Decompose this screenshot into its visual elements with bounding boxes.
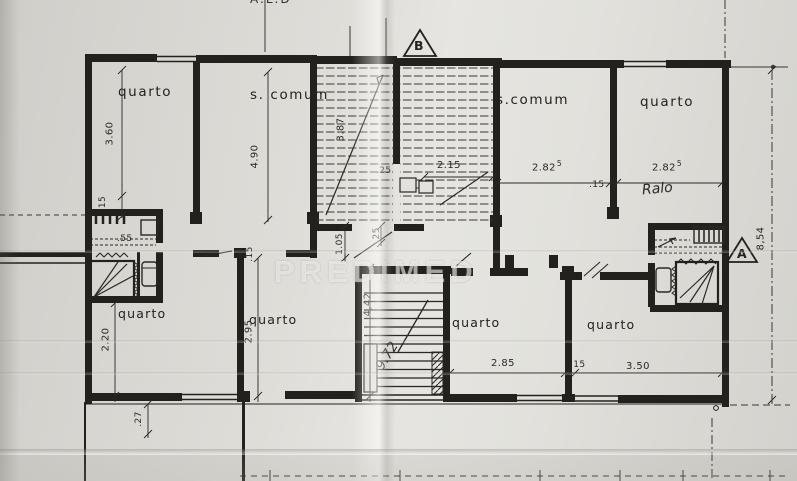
dim-left-room-depth: 3.60 — [104, 122, 115, 146]
top-edge-note: A.L.D — [250, 0, 292, 6]
dim-lower-left-depth: 2.20 — [100, 328, 111, 352]
neighbour-walls — [0, 215, 85, 263]
room-label-lower-right-bedroom: quarto — [587, 317, 635, 332]
dim-lower-partition-left: .15 — [245, 246, 255, 262]
dim-value: 2.82 — [652, 162, 676, 173]
room-label-top-left-bedroom: quarto — [118, 84, 172, 100]
floor-plan-scan: A.L.D quarto s. comum s.comum quarto qua… — [0, 0, 797, 481]
left-bathroom — [85, 209, 163, 303]
section-marker-a: A — [737, 246, 747, 261]
dim-top-partition: .15 — [589, 180, 605, 190]
dim-value: 2.82 — [532, 162, 556, 173]
dim-stair-width: 2.15 — [437, 160, 461, 171]
dim-lower-partition-right: .15 — [570, 360, 586, 370]
dim-entry-offset: .25 — [372, 227, 382, 243]
dim-left-wall-offset: 15 — [98, 196, 108, 208]
dim-stair-depth: 3.87 — [335, 118, 346, 142]
dim-lower-right-width: 3.50 — [626, 361, 650, 372]
room-label-top-right-common: s.comum — [496, 92, 569, 108]
dim-lower-center-right-width: 2.85 — [491, 358, 515, 369]
room-label-lower-center-left-bedroom: quarto — [249, 312, 297, 327]
dim-common-room-width: 2.825 — [532, 159, 562, 173]
dim-lower-center-depth: 2.95 — [243, 320, 254, 344]
room-label-lower-left-bedroom: quarto — [118, 306, 166, 321]
room-label-top-left-common: s. comum — [250, 87, 329, 103]
dim-superscript: 5 — [677, 159, 682, 168]
dim-bottom-offset: .27 — [134, 411, 144, 427]
room-label-top-right-bedroom: quarto — [640, 94, 694, 110]
dim-entry-width: 1.05 — [335, 233, 345, 255]
right-bathroom — [648, 223, 729, 312]
staircase-lower — [364, 286, 443, 394]
dim-superscript: 5 — [557, 159, 562, 168]
dim-stairwell-depth: 4,42 — [362, 293, 373, 317]
dim-right-bedroom-width: 2.825 — [652, 159, 682, 173]
section-marker-b: B — [414, 38, 424, 53]
dim-stair-offset: .25 — [376, 166, 392, 176]
handwritten-note: Ralo — [641, 180, 673, 199]
dim-right-side-height: 8,54 — [755, 227, 766, 251]
dim-bath-fixture: .55 — [117, 234, 133, 244]
dim-common-room-depth: 4.90 — [249, 145, 260, 169]
staircase-upper — [317, 64, 493, 226]
room-label-lower-center-right-bedroom: quarto — [452, 315, 500, 330]
